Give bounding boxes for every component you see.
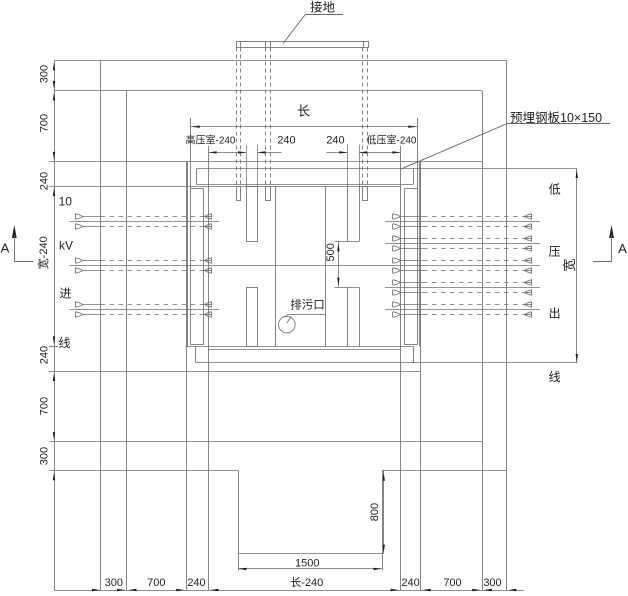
svg-text:宽: 宽 <box>562 258 577 271</box>
svg-text:低: 低 <box>549 183 561 197</box>
svg-text:线: 线 <box>58 336 70 350</box>
svg-text:压: 压 <box>549 245 561 259</box>
svg-text:240: 240 <box>39 172 51 190</box>
svg-text:300: 300 <box>39 65 51 83</box>
svg-text:长-240: 长-240 <box>290 576 323 589</box>
svg-text:低压室-240: 低压室-240 <box>366 134 416 147</box>
svg-text:高压室-240: 高压室-240 <box>185 134 235 147</box>
svg-text:排污口: 排污口 <box>290 298 325 312</box>
svg-text:500: 500 <box>325 243 337 261</box>
svg-text:1500: 1500 <box>295 557 319 569</box>
svg-text:240: 240 <box>401 577 419 589</box>
svg-text:A: A <box>1 241 10 256</box>
svg-text:kV: kV <box>59 239 73 253</box>
svg-text:700: 700 <box>443 577 461 589</box>
svg-text:300: 300 <box>483 577 501 589</box>
svg-text:240: 240 <box>39 346 51 364</box>
svg-text:800: 800 <box>369 503 381 521</box>
svg-text:700: 700 <box>39 114 51 132</box>
svg-text:700: 700 <box>39 397 51 415</box>
svg-text:预埋钢板10×150: 预埋钢板10×150 <box>510 111 602 125</box>
svg-text:接地: 接地 <box>310 0 336 15</box>
svg-text:A: A <box>618 241 627 256</box>
svg-text:240: 240 <box>187 577 205 589</box>
svg-text:出: 出 <box>549 307 561 321</box>
svg-text:300: 300 <box>105 577 123 589</box>
svg-text:线: 线 <box>549 370 561 384</box>
svg-text:进: 进 <box>59 287 71 301</box>
svg-text:长: 长 <box>297 104 310 119</box>
svg-text:10: 10 <box>59 195 73 209</box>
svg-text:300: 300 <box>39 447 51 465</box>
svg-text:宽-240: 宽-240 <box>36 236 50 269</box>
svg-text:240: 240 <box>277 135 295 147</box>
svg-text:240: 240 <box>326 135 344 147</box>
svg-text:700: 700 <box>147 577 165 589</box>
